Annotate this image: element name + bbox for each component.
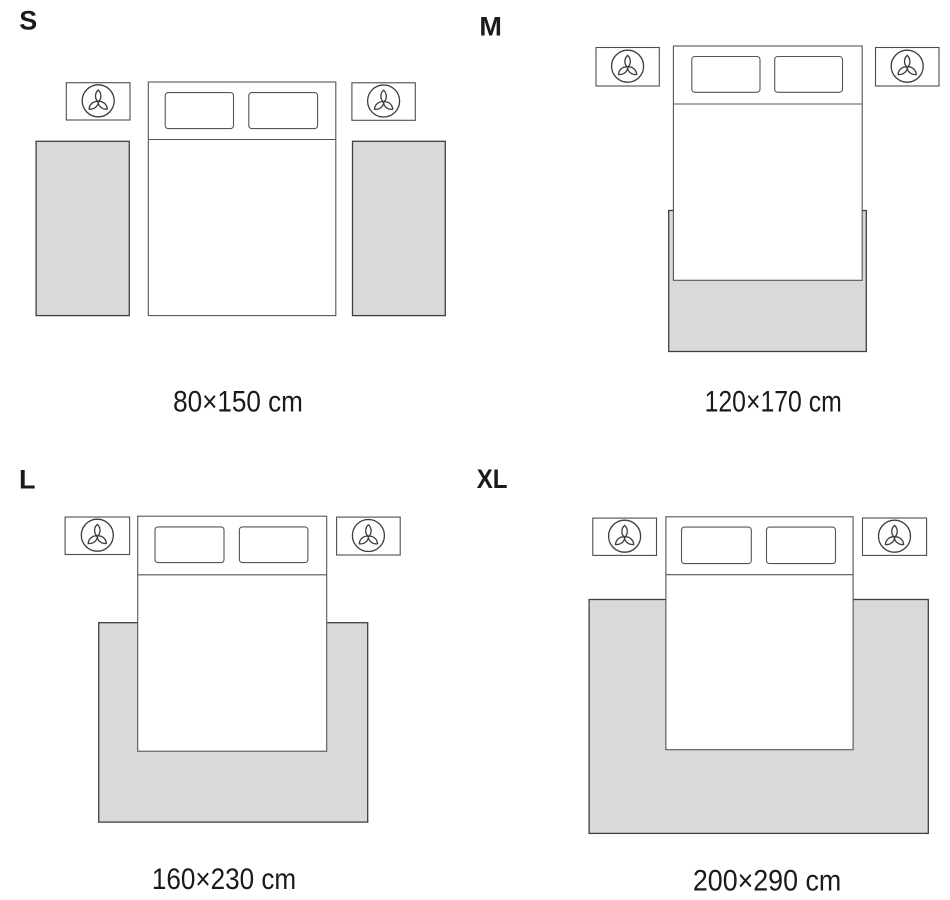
svg-text:160×230 cm: 160×230 cm — [152, 863, 296, 896]
svg-text:XL: XL — [477, 464, 508, 494]
svg-text:L: L — [19, 465, 36, 495]
svg-text:M: M — [479, 12, 502, 42]
svg-text:S: S — [19, 6, 37, 36]
svg-text:80×150 cm: 80×150 cm — [173, 386, 303, 419]
svg-text:120×170 cm: 120×170 cm — [705, 386, 842, 419]
svg-text:200×290 cm: 200×290 cm — [693, 864, 841, 897]
